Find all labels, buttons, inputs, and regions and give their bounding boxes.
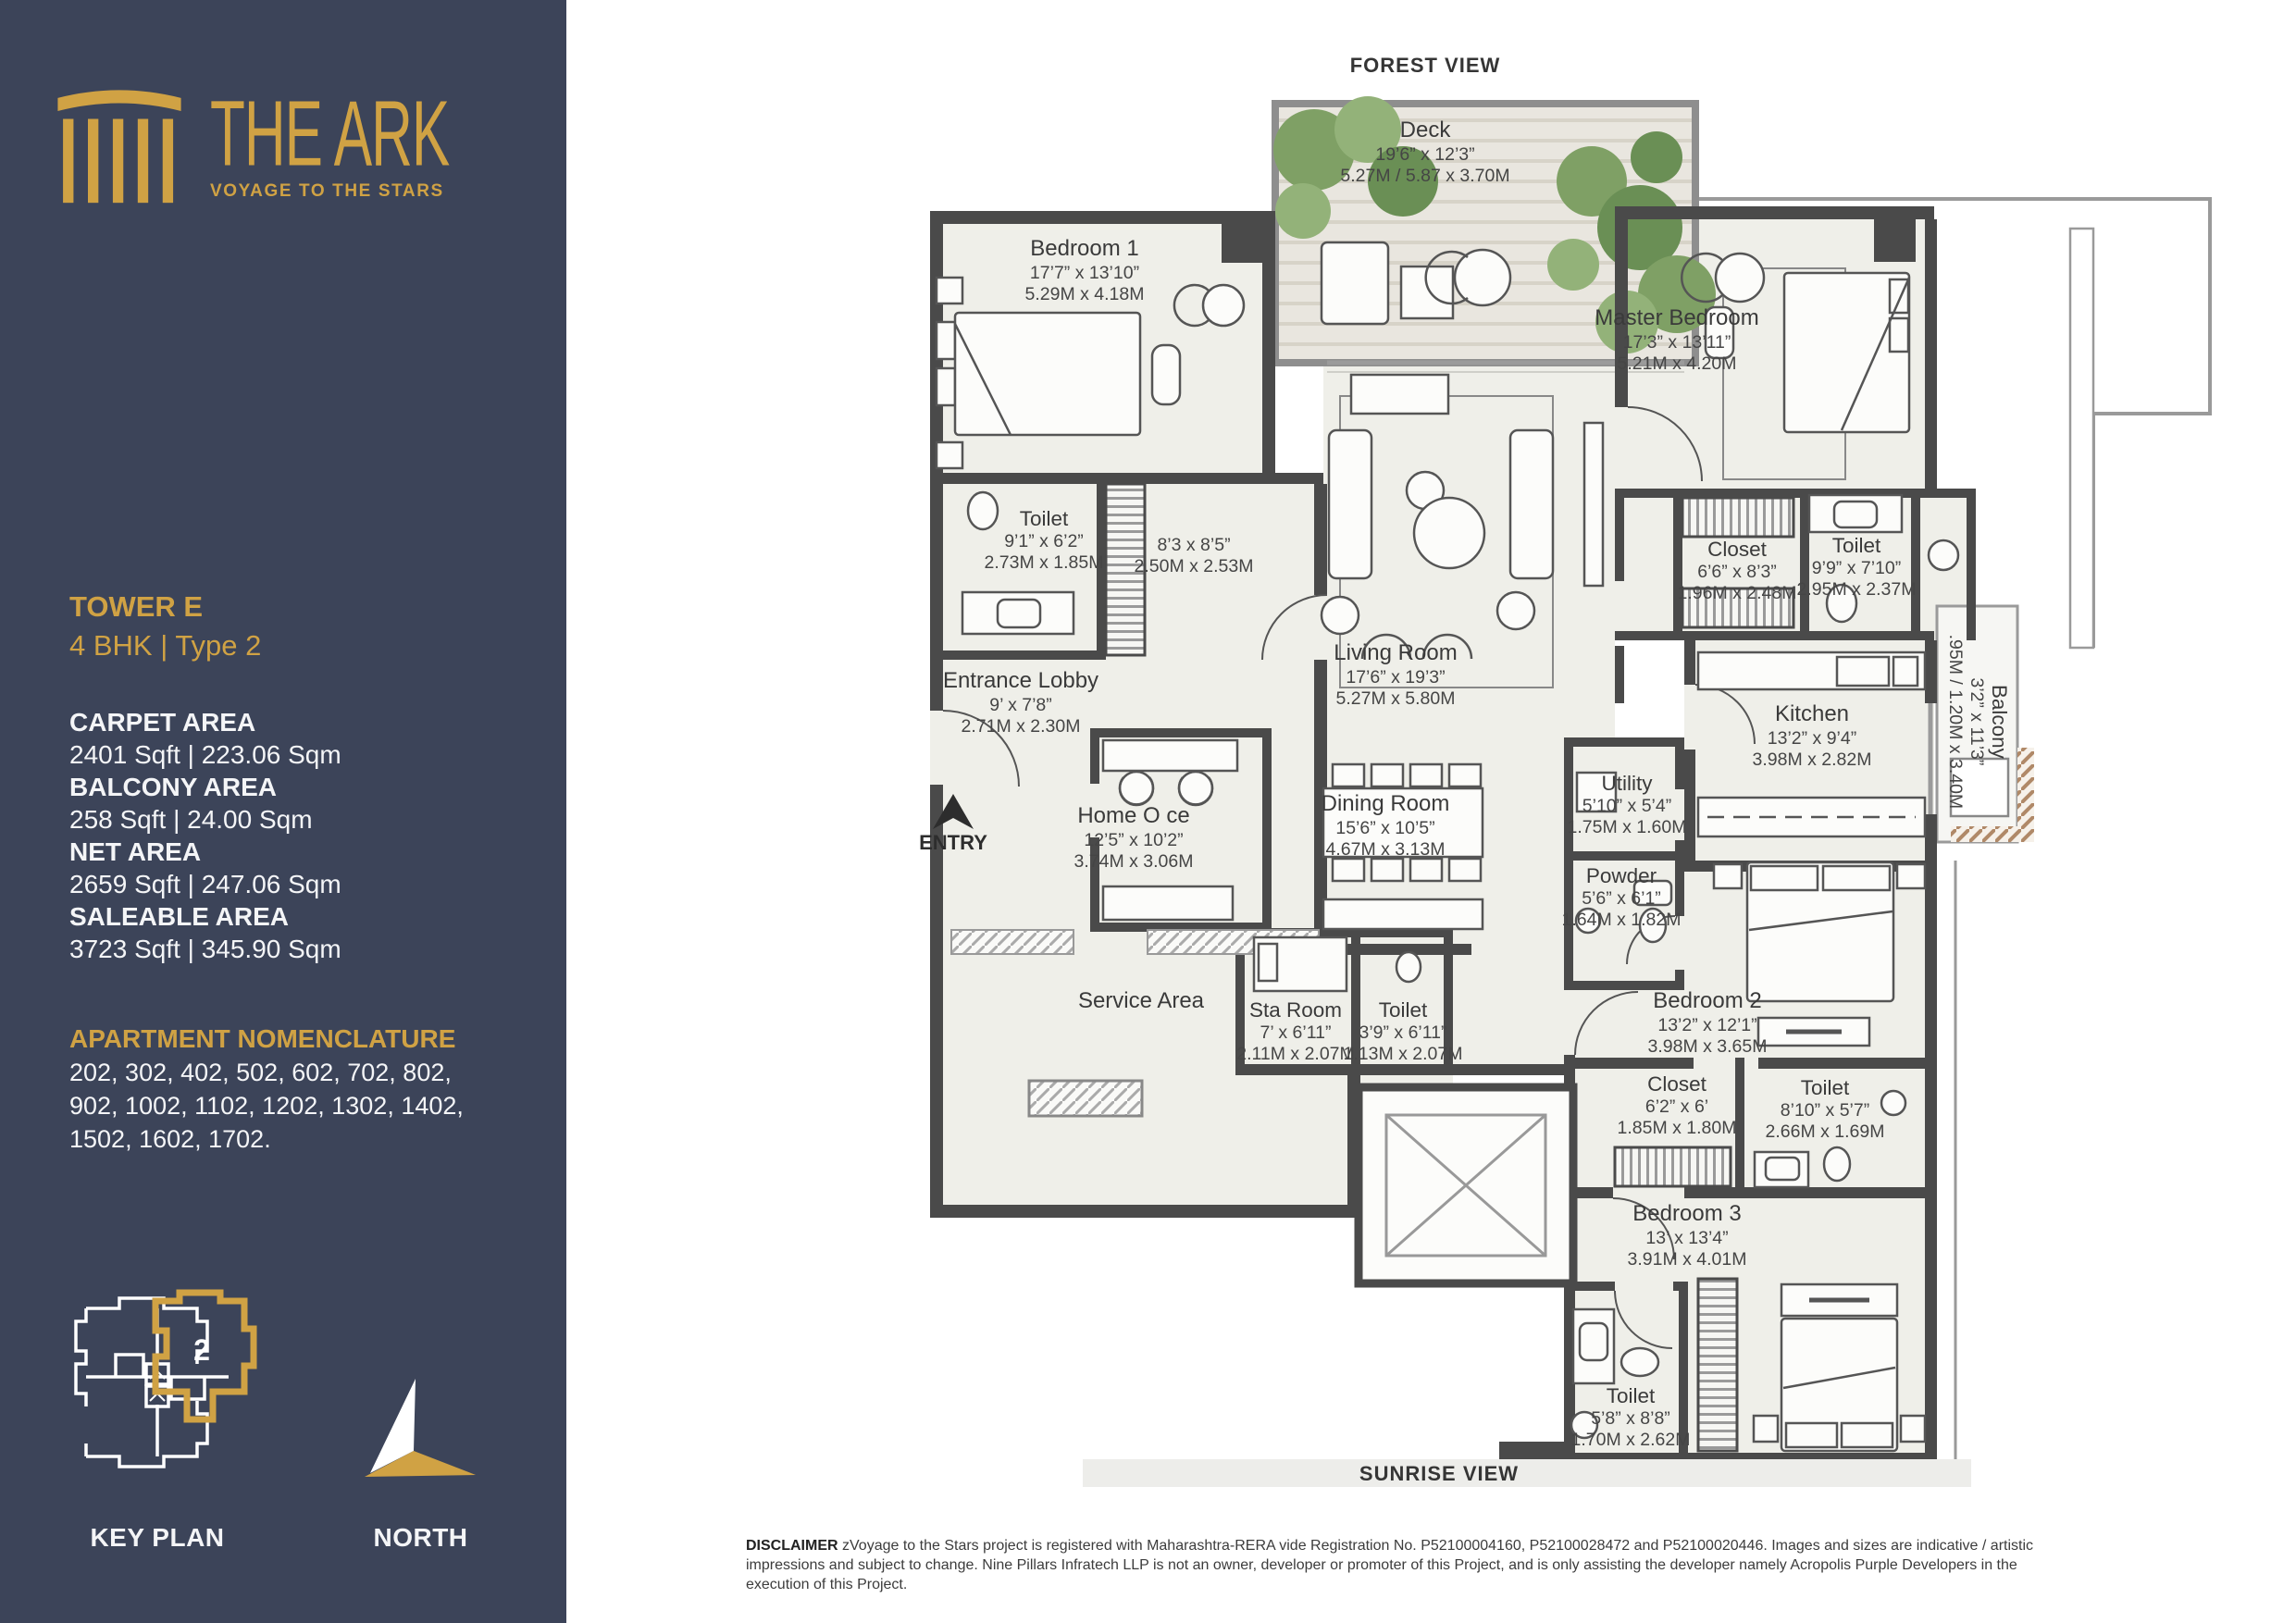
disclaimer: DISCLAIMER zVoyage to the Stars project … (746, 1536, 2079, 1594)
room-label-kitchen: Kitchen 13’2” x 9’4” 3.98M x 2.82M (1719, 701, 1905, 772)
room-label-toilet-3: Toilet 5’8” x 8’8” 1.70M x 2.62M (1543, 1383, 1719, 1452)
room-label-deck: Deck 19’6” x 12’3” 5.27M / 5.87 x 3.70M (1277, 118, 1573, 188)
disclaimer-label: DISCLAIMER (746, 1538, 838, 1554)
disclaimer-text: zVoyage to the Stars project is register… (746, 1538, 2033, 1592)
room-label-bedroom-2: Bedroom 2 13’2” x 12’1” 3.98M x 3.65M (1601, 988, 1814, 1059)
room-label-toilet-2: Toilet 8’10” x 5’7” 2.66M x 1.69M (1732, 1075, 1917, 1144)
room-label-living-room: Living Room 17’6” x 19’3” 5.27M x 5.80M (1257, 640, 1534, 711)
brochure-page: THE ARK VOYAGE TO THE STARS TOWER E 4 BH… (0, 0, 2296, 1623)
entry-label: ENTRY (907, 831, 999, 855)
room-label-passage: 8’3 x 8’5” 2.50M x 2.53M (1106, 535, 1282, 578)
room-label-home-office: Home O ce 12’5” x 10’2” 3.74M x 3.06M (1023, 803, 1245, 873)
sunrise-view-title: SUNRISE VIEW (1300, 1462, 1578, 1486)
room-label-master-bedroom: Master Bedroom 17’3” x 13’11” 5.21M x 4.… (1580, 305, 1774, 376)
room-label-dining-room: Dining Room 15’6” x 10’5” 4.67M x 3.13M (1247, 791, 1524, 861)
room-label-bedroom-1: Bedroom 1 17’7” x 13’10” 5.29M x 4.18M (946, 236, 1223, 306)
room-label-bedroom-3: Bedroom 3 13’ x 13’4” 3.91M x 4.01M (1581, 1201, 1793, 1271)
room-label-balcony: Balcony 3’2” x 11’3” .95M / 1.20M x 3.40… (1943, 601, 2012, 842)
room-label-master-toilet: Toilet 9’9” x 7’10” 2.95M x 2.37M (1778, 533, 1935, 601)
room-label-powder: Powder 5’6” x 6’1” 1.64M x 1.82M (1543, 863, 1700, 932)
room-label-entrance-lobby: Entrance Lobby 9’ x 7’8” 2.71M x 2.30M (910, 668, 1132, 738)
forest-view-title: FOREST VIEW (1286, 54, 1564, 78)
room-label-utility: Utility 5’10” x 5’4” 1.75M x 1.60M (1548, 771, 1706, 839)
room-label-staff-toilet: Toilet 3’9” x 6’11” 1.13M x 2.07M (1324, 997, 1482, 1066)
